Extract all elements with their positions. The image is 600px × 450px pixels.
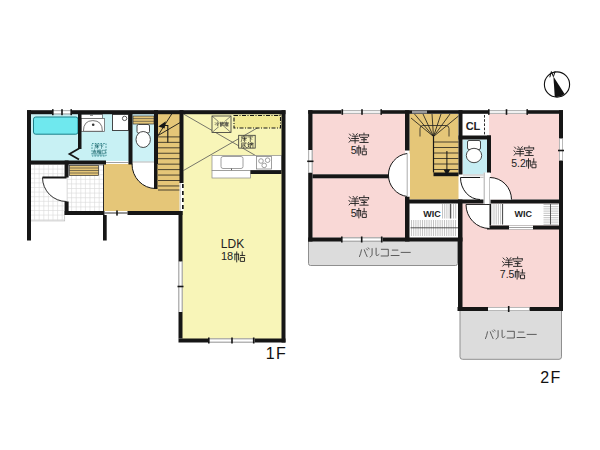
svg-text:5: 5 [351,144,357,156]
svg-text:CL: CL [466,120,481,132]
svg-text:2F: 2F [540,369,562,386]
svg-text:5: 5 [351,207,357,219]
svg-text:5.2: 5.2 [511,157,526,169]
svg-text:1F: 1F [266,345,288,362]
svg-text:LDK: LDK [221,237,244,251]
svg-text:7.5: 7.5 [500,268,515,280]
svg-text:WIC: WIC [515,209,533,219]
svg-text:18: 18 [221,250,233,262]
svg-text:WIC: WIC [423,209,441,219]
